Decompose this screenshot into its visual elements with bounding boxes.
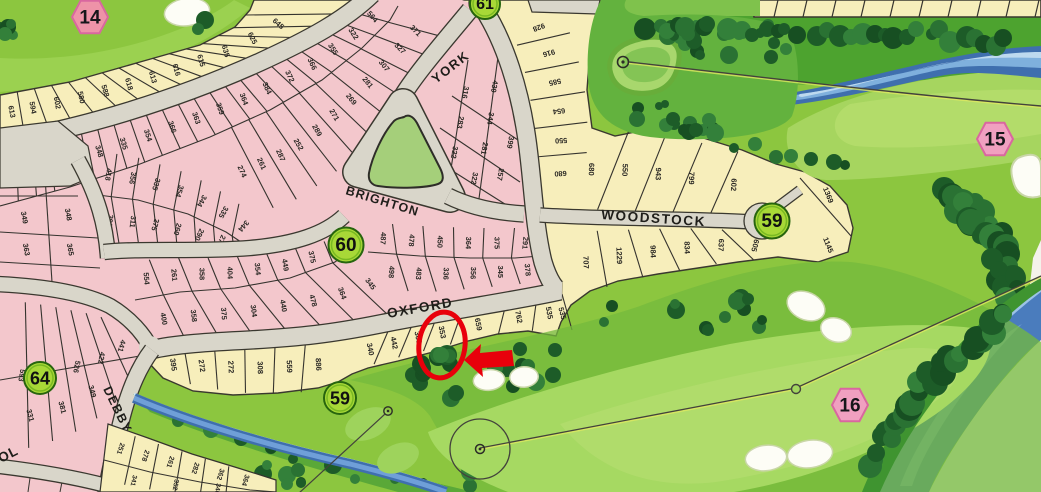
svg-text:375: 375: [492, 237, 501, 249]
svg-text:450: 450: [435, 235, 444, 248]
svg-text:358: 358: [189, 309, 199, 322]
svg-text:345: 345: [496, 266, 505, 278]
svg-text:554: 554: [142, 272, 152, 286]
svg-text:487: 487: [378, 232, 388, 245]
svg-text:984: 984: [648, 245, 657, 259]
svg-text:354: 354: [253, 262, 263, 276]
svg-text:943: 943: [654, 167, 663, 180]
svg-text:378: 378: [523, 263, 533, 276]
svg-text:304: 304: [249, 304, 260, 318]
svg-text:478: 478: [407, 234, 417, 247]
svg-text:680: 680: [554, 169, 567, 179]
svg-text:449: 449: [280, 258, 291, 272]
svg-text:637: 637: [716, 239, 725, 252]
svg-text:375: 375: [219, 307, 229, 320]
svg-text:311: 311: [128, 215, 138, 228]
svg-text:336: 336: [441, 267, 450, 280]
svg-text:64: 64: [30, 369, 50, 389]
svg-text:16: 16: [839, 396, 860, 417]
svg-text:483: 483: [414, 267, 424, 280]
svg-text:356: 356: [469, 267, 478, 280]
svg-text:59: 59: [330, 389, 350, 409]
svg-text:358: 358: [198, 268, 207, 280]
svg-text:680: 680: [587, 163, 596, 176]
svg-text:61: 61: [476, 0, 494, 13]
svg-text:886: 886: [314, 358, 324, 371]
svg-text:59: 59: [761, 211, 782, 232]
svg-text:364: 364: [464, 237, 473, 251]
svg-text:308: 308: [255, 361, 264, 374]
svg-text:799: 799: [687, 172, 696, 185]
svg-text:14: 14: [79, 8, 101, 29]
svg-text:707: 707: [581, 256, 590, 269]
svg-text:834: 834: [682, 241, 691, 255]
svg-text:602: 602: [729, 178, 739, 191]
svg-text:404: 404: [225, 267, 234, 280]
svg-text:272: 272: [226, 360, 235, 373]
svg-text:550: 550: [620, 164, 629, 177]
svg-text:261: 261: [169, 269, 179, 282]
svg-text:60: 60: [335, 235, 356, 256]
svg-text:1229: 1229: [614, 247, 624, 264]
svg-text:272: 272: [197, 359, 208, 373]
svg-text:550: 550: [555, 136, 568, 146]
svg-text:654: 654: [552, 106, 566, 116]
svg-text:559: 559: [285, 360, 294, 373]
svg-text:498: 498: [387, 266, 397, 279]
svg-text:15: 15: [984, 130, 1006, 151]
